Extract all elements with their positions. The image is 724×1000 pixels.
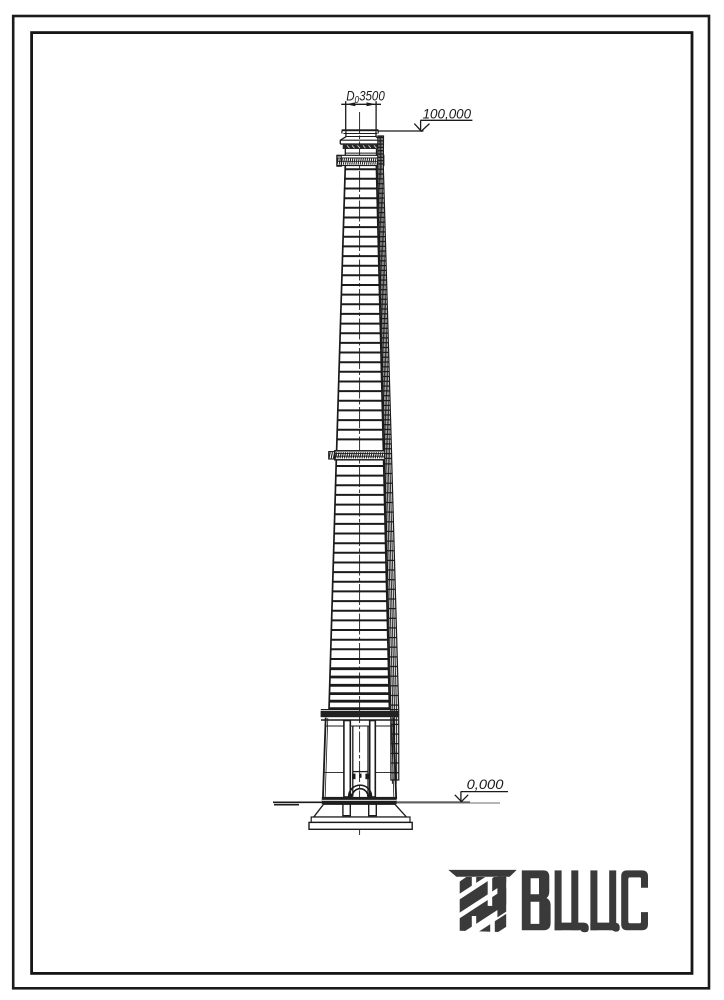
svg-text:0,000: 0,000 <box>467 777 504 793</box>
